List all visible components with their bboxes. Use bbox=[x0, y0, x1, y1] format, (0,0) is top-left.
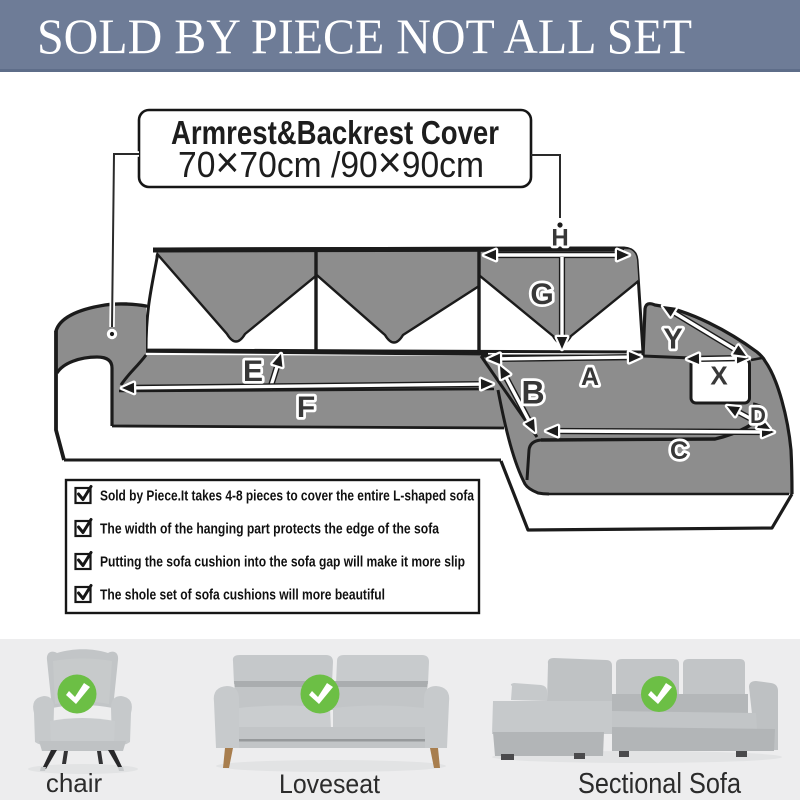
svg-text:X: X bbox=[710, 360, 728, 390]
svg-text:D: D bbox=[750, 403, 766, 428]
svg-text:B: B bbox=[521, 375, 544, 411]
svg-text:G: G bbox=[530, 278, 553, 311]
svg-text:The shole set of sofa cushions: The shole set of sofa cushions will more… bbox=[100, 587, 385, 604]
svg-text:chair: chair bbox=[46, 768, 103, 798]
svg-text:Sold by Piece.It takes 4-8 pie: Sold by Piece.It takes 4-8 pieces to cov… bbox=[100, 488, 475, 505]
svg-text:70×70cm /90×90cm: 70×70cm /90×90cm bbox=[178, 138, 484, 187]
svg-text:E: E bbox=[243, 355, 263, 388]
svg-text:C: C bbox=[670, 437, 688, 465]
svg-text:Sectional Sofa: Sectional Sofa bbox=[578, 768, 742, 800]
svg-text:Loveseat: Loveseat bbox=[279, 769, 380, 799]
svg-text:F: F bbox=[297, 391, 315, 424]
svg-text:Y: Y bbox=[663, 323, 682, 355]
svg-text:Putting the sofa cushion into: Putting the sofa cushion into the sofa g… bbox=[100, 554, 465, 571]
svg-text:H: H bbox=[551, 225, 568, 252]
svg-text:The width of the hanging part: The width of the hanging part protects t… bbox=[100, 521, 440, 538]
svg-text:A: A bbox=[581, 363, 599, 391]
svg-text:SOLD BY PIECE NOT ALL SET: SOLD BY PIECE NOT ALL SET bbox=[37, 8, 692, 64]
